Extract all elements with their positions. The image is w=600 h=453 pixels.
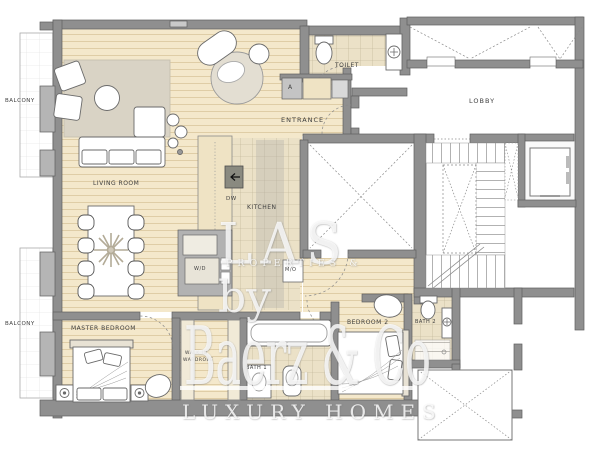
duvet-end (103, 388, 127, 400)
dining-chair (128, 284, 144, 299)
wall-segment (514, 344, 522, 370)
window-block (40, 86, 55, 132)
entry-closet (303, 78, 331, 99)
label-dishwasher: DW (226, 197, 237, 203)
wall-segment (514, 288, 522, 324)
top-room-floor (407, 25, 575, 61)
entry-cabinet (332, 80, 348, 98)
wall-segment (470, 134, 522, 143)
sofa-cushion (82, 150, 107, 164)
lobby-floor (351, 66, 575, 138)
watermark-top-subline: PROPERTIES & (226, 259, 363, 269)
wall-segment (352, 88, 407, 96)
floor-plan: BALCONY BALCONY LIVING ROOM TOILET ENTRA… (0, 0, 600, 453)
pouf (249, 44, 269, 64)
wall-segment (172, 318, 180, 402)
side-table (175, 126, 187, 138)
room-label-entrance: ENTRANCE (281, 117, 324, 124)
wc-bowl (316, 42, 332, 64)
wall-segment (455, 60, 530, 68)
dining-chair (78, 215, 94, 230)
room-label-master-bedroom: MASTER BEDROOM (71, 326, 136, 332)
label-closet-a: A (288, 85, 293, 91)
stair-flight-right (476, 163, 505, 255)
window-block (40, 150, 55, 176)
laundry-shelf (183, 235, 217, 255)
dining-chair (128, 215, 144, 230)
floor-lamp (178, 150, 183, 155)
lamp-dot (138, 392, 140, 394)
elevator-panel (566, 156, 570, 168)
dining-chair (128, 261, 144, 276)
wall-segment (414, 134, 426, 304)
room-label-balcony-top: BALCONY (5, 99, 35, 105)
dining-chair (78, 261, 94, 276)
dining-chair (78, 284, 94, 299)
coffee-table (95, 86, 120, 111)
duvet-end (77, 388, 101, 400)
window-block (40, 252, 55, 296)
room-label-living-room: LIVING ROOM (93, 181, 139, 187)
elevator-panel (566, 172, 570, 184)
watermark-tagline: LUXURY HOMES (182, 402, 443, 422)
wall-segment (414, 288, 574, 297)
room-label-lobby: LOBBY (469, 98, 495, 105)
wall-segment (556, 60, 583, 68)
label-washer-dryer: W/D (194, 267, 206, 272)
side-table (167, 114, 179, 126)
sofa-cushion (136, 150, 161, 164)
wall-segment (407, 17, 583, 25)
side-table (168, 138, 178, 148)
window-slit (170, 21, 187, 27)
lamp-dot (63, 392, 65, 394)
room-label-balcony-bottom: BALCONY (5, 322, 35, 328)
wall-segment (300, 26, 309, 82)
table-plant (94, 233, 128, 267)
wall-segment (518, 134, 525, 207)
wall-segment (351, 96, 359, 108)
sofa-cushion (109, 150, 134, 164)
wall-segment (452, 288, 460, 368)
wall-segment (518, 200, 576, 207)
watermark-brand: Baerz & Co (184, 316, 430, 397)
sofa-chaise (134, 107, 165, 137)
staircase (426, 143, 570, 289)
wall-segment (522, 134, 574, 141)
wall-segment (53, 312, 140, 320)
lobby-door (427, 57, 455, 66)
room-label-kitchen: KITCHEN (247, 205, 277, 211)
stair-flight-bottom (426, 255, 505, 288)
dining-chair (78, 238, 94, 253)
dining-chair (128, 238, 144, 253)
wall-segment (407, 60, 427, 68)
window-block (40, 332, 55, 376)
stair-flight-top (426, 143, 505, 163)
armchair (53, 93, 82, 120)
lobby-door (530, 57, 556, 66)
elevator-car (530, 148, 570, 196)
room-label-toilet: TOILET (335, 63, 359, 69)
shaft (505, 143, 518, 200)
wall-segment (348, 250, 416, 258)
